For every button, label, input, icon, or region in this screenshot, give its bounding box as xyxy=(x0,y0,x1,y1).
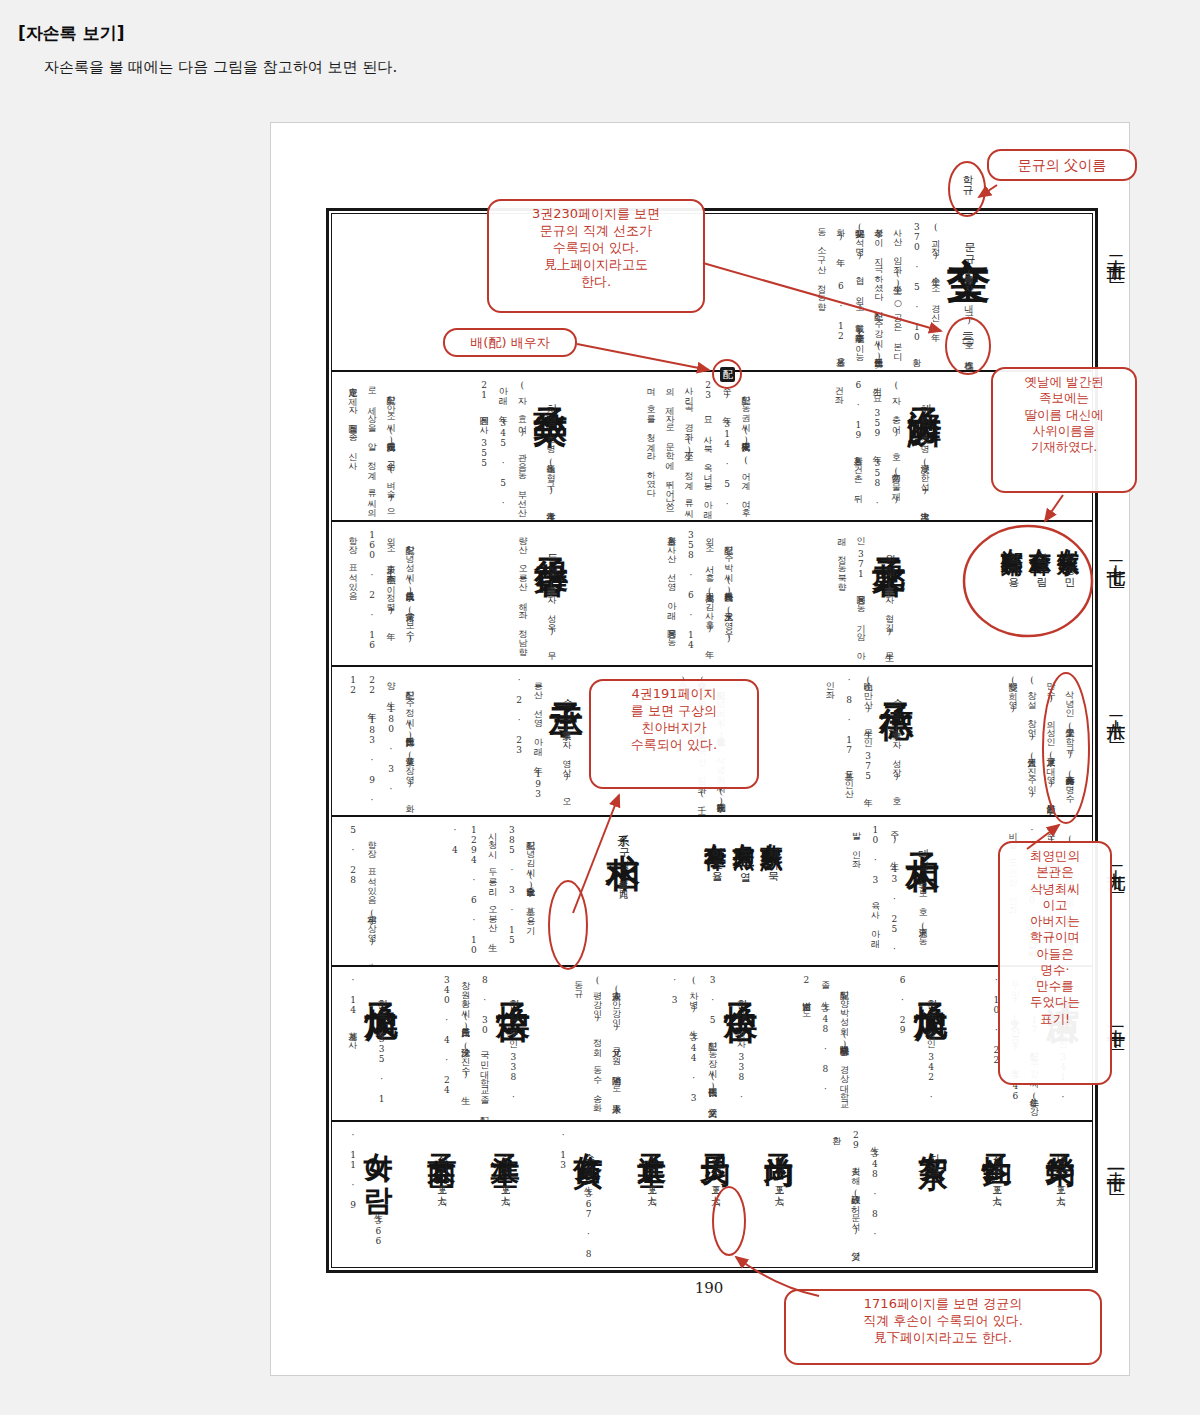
person-entry: 文奎문규字乃極(자 내극) 호 槐亭(괴정) 生순조 경신 年 370 · 5 … xyxy=(813,222,992,362)
person-details: 安康人(안강인) 父元규원 消陸위로 平康人(평강인) 정회 동수 송화 동규 xyxy=(574,975,622,1106)
circled-father-name: 학규 xyxy=(959,167,974,189)
person-details: 삭녕인 父學圭(학규) 命壽萬壽(명수 만수) 의성인 父運京(대영) 昌寧呂酒… xyxy=(1008,675,1075,798)
person-reading: 준기 xyxy=(500,1146,513,1170)
person-entry: 女盧秀烈노수열 xyxy=(732,825,755,957)
person-name: 子商基 xyxy=(425,1130,459,1139)
person-entry: 女李孝律이효율 xyxy=(704,825,727,957)
person-reading: 환욱 xyxy=(925,991,938,1015)
circled-spouse-mark: 配 xyxy=(720,367,735,382)
detail-cluster: 삭녕인 父學圭(학규) 命壽萬壽(명수 만수) 의성인 父運京(대영) 昌寧呂酒… xyxy=(1004,675,1080,807)
person-reading: 경균 xyxy=(710,1146,723,1170)
person-entry: 子承三승삼字英振(자 영삼) 오룡산 선영 아래 年 193 · 2 · 23 xyxy=(510,675,584,807)
person-details: 見下 一七一六 xyxy=(711,1179,721,1189)
annotation-father-name: 문규의 父이름 xyxy=(987,149,1137,181)
person-reading: 문규 xyxy=(963,235,976,259)
person-reading: 상기 xyxy=(436,1146,449,1170)
person-entry: 女鄭在鏞정재용 xyxy=(1001,530,1024,657)
detail-cluster: 配김녕김씨(金寧金氏) 墓 용기 385 · 3 · 15 시청시 두릉리 오봉… xyxy=(446,825,541,957)
person-name: 女蔡琪默 xyxy=(760,825,786,833)
person-reading: 승덕 xyxy=(891,691,904,715)
person-entry: 子致榮치영초명 衡龜(형구) 字孝汝(자 효여) 관음동 부선산 아래 年 34… xyxy=(475,380,568,512)
detail-cluster: 配함안조씨(咸安趙氏) 命교(벼슬)으로 세상을 알 정계 류씨의 定庵 제자 … xyxy=(344,380,401,512)
person-name: 子煥旭 xyxy=(362,975,402,984)
person-entry: 女修貞수정生 367 · 8 · 13 xyxy=(554,1130,603,1259)
person-entry: 子得馨득형字成玉(자 성옥) 무량산 오룡산 해좌 정남향 xyxy=(514,530,569,657)
person-reading: 해린 xyxy=(919,396,932,420)
person-entry: 子進基진기見下 一七一六 xyxy=(637,1130,667,1259)
person-name: 女崔永敏 xyxy=(1056,530,1082,538)
detail-cluster: 安康人(안강인) 父元규원 消陸위로 平康人(평강인) 정회 동수 송화 동규 xyxy=(570,975,627,1112)
person-name: 子承三 xyxy=(547,675,587,684)
person-details: 見下 一七一六 xyxy=(1056,1179,1066,1189)
annotation-daughters: 옛날에 발간된 족보에는 딸이름 대신에 사위이름을 기재하였다. xyxy=(991,367,1137,493)
person-details: 초명 漢燮(한섭) 字忠汝(자 충어) 호 勿齋(물재) 生기묘 359 年 3… xyxy=(834,380,930,508)
person-entry: 女金奎林김규림 xyxy=(1029,530,1052,657)
generation-row-29: (寅生) 配삭녕최씨(朔寧崔氏) 父白淳(백순) 年 350 · 23 · 9 … xyxy=(332,817,1092,967)
person-details: 配창녕성씨(昌寧成氏) 父甫守(보수) 외조 東步 李巨烈(이정렬) 年 160… xyxy=(348,530,415,650)
page: [자손록 보기] 자손록을 볼 때에는 다음 그림을 참고하여 보면 된다. 文… xyxy=(0,0,1200,1415)
person-reading: 진기 xyxy=(646,1146,659,1170)
person-name: 子炅均 xyxy=(699,1130,733,1139)
annotation-see-below: 1716페이지를 보면 경균의 직계 후손이 수록되어 있다. 見下페이지라고도… xyxy=(784,1289,1102,1365)
detail-cluster: 配밀양박성희(密陽朴成熙) 경상대학교졸 生 348 · 8 · 2 南道남도 xyxy=(797,975,854,1112)
person-entry: 女蔡琪默채기묵 xyxy=(760,825,783,957)
person-name: 文奎 xyxy=(944,222,995,228)
person-details: 配안동권씨(安東權氏) (어계 여후손) 年 314 · 5 · 23 묘 사북… xyxy=(646,380,751,512)
person-name: 女盧秀烈 xyxy=(731,825,757,833)
person-reading: 채기묵 xyxy=(767,840,780,876)
person-reading: 대상 xyxy=(917,841,930,865)
person-details: 見下 一七一六 xyxy=(992,1179,1002,1189)
person-reading: 최영민 xyxy=(1063,545,1076,581)
person-name: 子進基 xyxy=(635,1130,669,1139)
person-entry: 子大相대상字성보 호 東洲(동주) 生 43 · 25 · 10 · 3 육사 … xyxy=(847,825,940,957)
person-name: 子榮均 xyxy=(1044,1130,1078,1139)
person-entry: 子煥旭환욱年 335 · 1 · 14 墓계사 xyxy=(344,975,399,1112)
person-reading: 김규림 xyxy=(1035,545,1048,581)
person-name: 子大相 xyxy=(903,825,943,834)
person-name: 子性鈞 xyxy=(980,1130,1014,1139)
person-entry: 女崔永敏최영민 xyxy=(1057,530,1080,657)
detail-cluster: 향장 표석있음 相宇(상영) 生 5 · 28 xyxy=(344,825,382,957)
person-entry: 系子求相구상生父承石 四一九 xyxy=(605,825,641,957)
generation-row-26: 子海鱗해린초명 漢燮(한섭) 字忠汝(자 충어) 호 勿齋(물재) 生기묘 35… xyxy=(332,372,1092,522)
person-name: 子得馨 xyxy=(532,530,572,539)
person-name: 子煥吉 xyxy=(493,975,533,984)
annotation-choi-note: 최영민의 본관은 삭녕최씨 이고 아버지는 학규이며 아들은 명수· 만수를 두… xyxy=(998,841,1112,1085)
person-name: 子準基 xyxy=(489,1130,523,1139)
person-reading: 치영 xyxy=(545,396,558,420)
person-name: 子尚均 xyxy=(763,1130,797,1139)
person-details: 見下 一七一六 xyxy=(775,1179,785,1189)
person-name: 子煥台 xyxy=(721,975,761,984)
person-entry: 子榮均영균見下 一七一六 xyxy=(1045,1130,1075,1259)
circled-page-230: 二三〇 xyxy=(959,323,976,329)
person-name: 女鄭在鏞 xyxy=(1000,530,1026,538)
person-details: 향장 표석있음 相宇(상영) 生 5 · 28 xyxy=(348,825,377,956)
person-entry: 子尚均상균見下 一七一六 xyxy=(764,1130,794,1259)
annotation-spouse: 배(配) 배우자 xyxy=(443,328,577,357)
generation-label-27: 二十七世 xyxy=(1104,546,1130,558)
person-reading: 이효율 xyxy=(710,840,723,876)
person-group: 女崔永敏최영민女金奎林김규림女鄭在鏞정재용 xyxy=(1001,530,1080,657)
person-reading: 승삼 xyxy=(561,691,574,715)
person-reading: 득형 xyxy=(546,546,559,570)
page-number: 190 xyxy=(679,1279,739,1297)
person-reading: 영균 xyxy=(1055,1146,1068,1170)
annotation-birth-father: 4권191페이지 를 보면 구상의 친아버지가 수록되어 있다. xyxy=(589,679,759,789)
generation-row-27: 女崔永敏최영민女金奎林김규림女鄭在鏞정재용子元馨원형字亨吉(자 형길) 生무인 … xyxy=(332,522,1092,667)
person-name: 子致榮 xyxy=(531,380,571,389)
person-details: 配함안조씨(咸安趙氏) 命교(벼슬)으로 세상을 알 정계 류씨의 定庵 제자 … xyxy=(348,380,396,511)
person-entry: 子炅均경균見下 一七一六 xyxy=(700,1130,730,1259)
detail-cluster: 配경주박씨(慶州朴氏) 父水玉(영우) 외조 서흥 金思离(김사홍) 年 358… xyxy=(663,530,739,657)
person-reading: 환태 xyxy=(735,991,748,1015)
person-reading: 원형 xyxy=(884,546,897,570)
person-reading: 환길 xyxy=(507,991,520,1015)
person-reading: 지영 xyxy=(928,1146,941,1170)
person-details: 字乃極(자 내극) 호 槐亭(괴정) 生순조 경신 年 370 · 5 · 10… xyxy=(817,222,974,361)
person-entry: 子準基준기見下 一七一六 xyxy=(490,1130,520,1259)
person-details: 見下 一七一六 xyxy=(647,1179,657,1189)
person-name: 子煥旭 xyxy=(911,975,951,984)
generation-label-28: 二十八世 xyxy=(1104,701,1130,713)
person-entry: 子煥旭환욱임인 342 · 6 · 29 xyxy=(894,975,949,1112)
person-name: 女아람 xyxy=(361,1130,395,1197)
person-name: 女金奎林 xyxy=(1028,530,1054,538)
person-entry: 女智永지영 xyxy=(918,1130,948,1259)
person-entry: 子商基상기見下 一七一六 xyxy=(427,1130,457,1259)
person-entry: 子元馨원형字亨吉(자 형길) 生무인 371 圓웅동 기암 아래 정동북향 xyxy=(833,530,907,657)
person-reading: 상균 xyxy=(774,1146,787,1170)
person-name: 求相 xyxy=(603,827,643,833)
person-reading: 수정 xyxy=(583,1146,596,1170)
person-entry: 子性鈞성균見下 一七一六 xyxy=(982,1130,1012,1259)
annotation-see-above: 3권230페이지를 보면 문규의 직계 선조가 수록되어 있다. 見上페이지라고… xyxy=(487,199,705,313)
person-name: 女修貞 xyxy=(572,1130,606,1139)
person-entry: 子煥台환태병자 338 · 3 · 5 配인동장씨(仁同張氏) 父文炳(차병) … xyxy=(666,975,759,1112)
person-details: 配김녕김씨(金寧金氏) 墓 용기 385 · 3 · 15 시청시 두릉리 오봉… xyxy=(450,825,536,955)
detail-cluster: 配진주정씨(晉州鄭氏) 父章英(장영) 화양 生 180 · 3 · 22 年 … xyxy=(344,675,420,807)
detail-cluster: 生 348 · 8 · 29 夫김해 許政碩(허문석) 父영환 xyxy=(828,1130,885,1259)
person-details: 配진주정씨(晉州鄭氏) 父章英(장영) 화양 生 180 · 3 · 22 年 … xyxy=(348,675,415,807)
person-reading: 정재용 xyxy=(1007,545,1020,581)
person-name: 子承德 xyxy=(877,675,917,684)
generation-label-25: 二十五世 xyxy=(1104,241,1130,253)
arrow-father-name xyxy=(979,185,997,197)
person-details: 配밀양박성희(密陽朴成熙) 경상대학교졸 生 348 · 8 · 2 南道남도 xyxy=(801,975,849,1104)
person-reading: 노수열 xyxy=(738,840,751,876)
person-name: 女李孝律 xyxy=(703,825,729,833)
page-title: [자손록 보기] xyxy=(18,22,124,45)
person-entry: 子煥吉환길무인 338 · 8 · 30 국민대학교졸 配창원황씨(昌原黃氏) … xyxy=(438,975,531,1112)
person-entry: 子海鱗해린초명 漢燮(한섭) 字忠汝(자 충어) 호 勿齋(물재) 生기묘 35… xyxy=(830,380,942,512)
person-name: 子元馨 xyxy=(870,530,910,539)
scan-panel: 文奎문규字乃極(자 내극) 호 槐亭(괴정) 生순조 경신 年 370 · 5 … xyxy=(270,122,1130,1376)
detail-cluster: 配안동권씨(安東權氏) (어계 여후손) 年 314 · 5 · 23 묘 사북… xyxy=(642,380,756,512)
person-entry: 子承德승덕字聖章(자 성장) 호 晩山(만산) 生무인 375 年 · 8 · … xyxy=(821,675,914,807)
generation-row-30: 子演台연대갑진 341 · 9 · 17 配진주강씨 姜斗仁(강두인) 父甲文(… xyxy=(332,967,1092,1122)
person-reading: 성균 xyxy=(991,1146,1004,1170)
person-details: 見下 一七一六 xyxy=(437,1179,447,1189)
generation-label-31: 三十一世 xyxy=(1104,1153,1130,1165)
person-details: 生父承石 四一九 xyxy=(618,873,628,883)
person-details: 生 348 · 8 · 29 夫김해 許政碩(허문석) 父영환 xyxy=(832,1130,880,1254)
person-group: 女蔡琪默채기묵女盧秀烈노수열女李孝律이효율 xyxy=(704,825,783,957)
generation-row-31: 子榮均영균見下 一七一六子性鈞성균見下 一七一六女智永지영生 348 · 8 ·… xyxy=(332,1122,1092,1267)
person-name: 女智永 xyxy=(917,1130,951,1139)
person-details: 配경주박씨(慶州朴氏) 父水玉(영우) 외조 서흥 金思离(김사홍) 年 358… xyxy=(667,530,734,650)
person-entry: 女아람生 366 · 11 · 9 xyxy=(344,1130,393,1259)
person-reading: 환욱 xyxy=(376,991,389,1015)
person-name: 子海鱗 xyxy=(905,380,945,389)
person-reading: 구상 xyxy=(617,840,630,864)
detail-cluster: 配창녕성씨(昌寧成氏) 父甫守(보수) 외조 東步 李巨烈(이정렬) 年 160… xyxy=(344,530,420,657)
page-subtitle: 자손록을 볼 때에는 다음 그림을 참고하여 보면 된다. xyxy=(44,58,397,77)
person-details: 見下 一七一六 xyxy=(501,1179,511,1189)
